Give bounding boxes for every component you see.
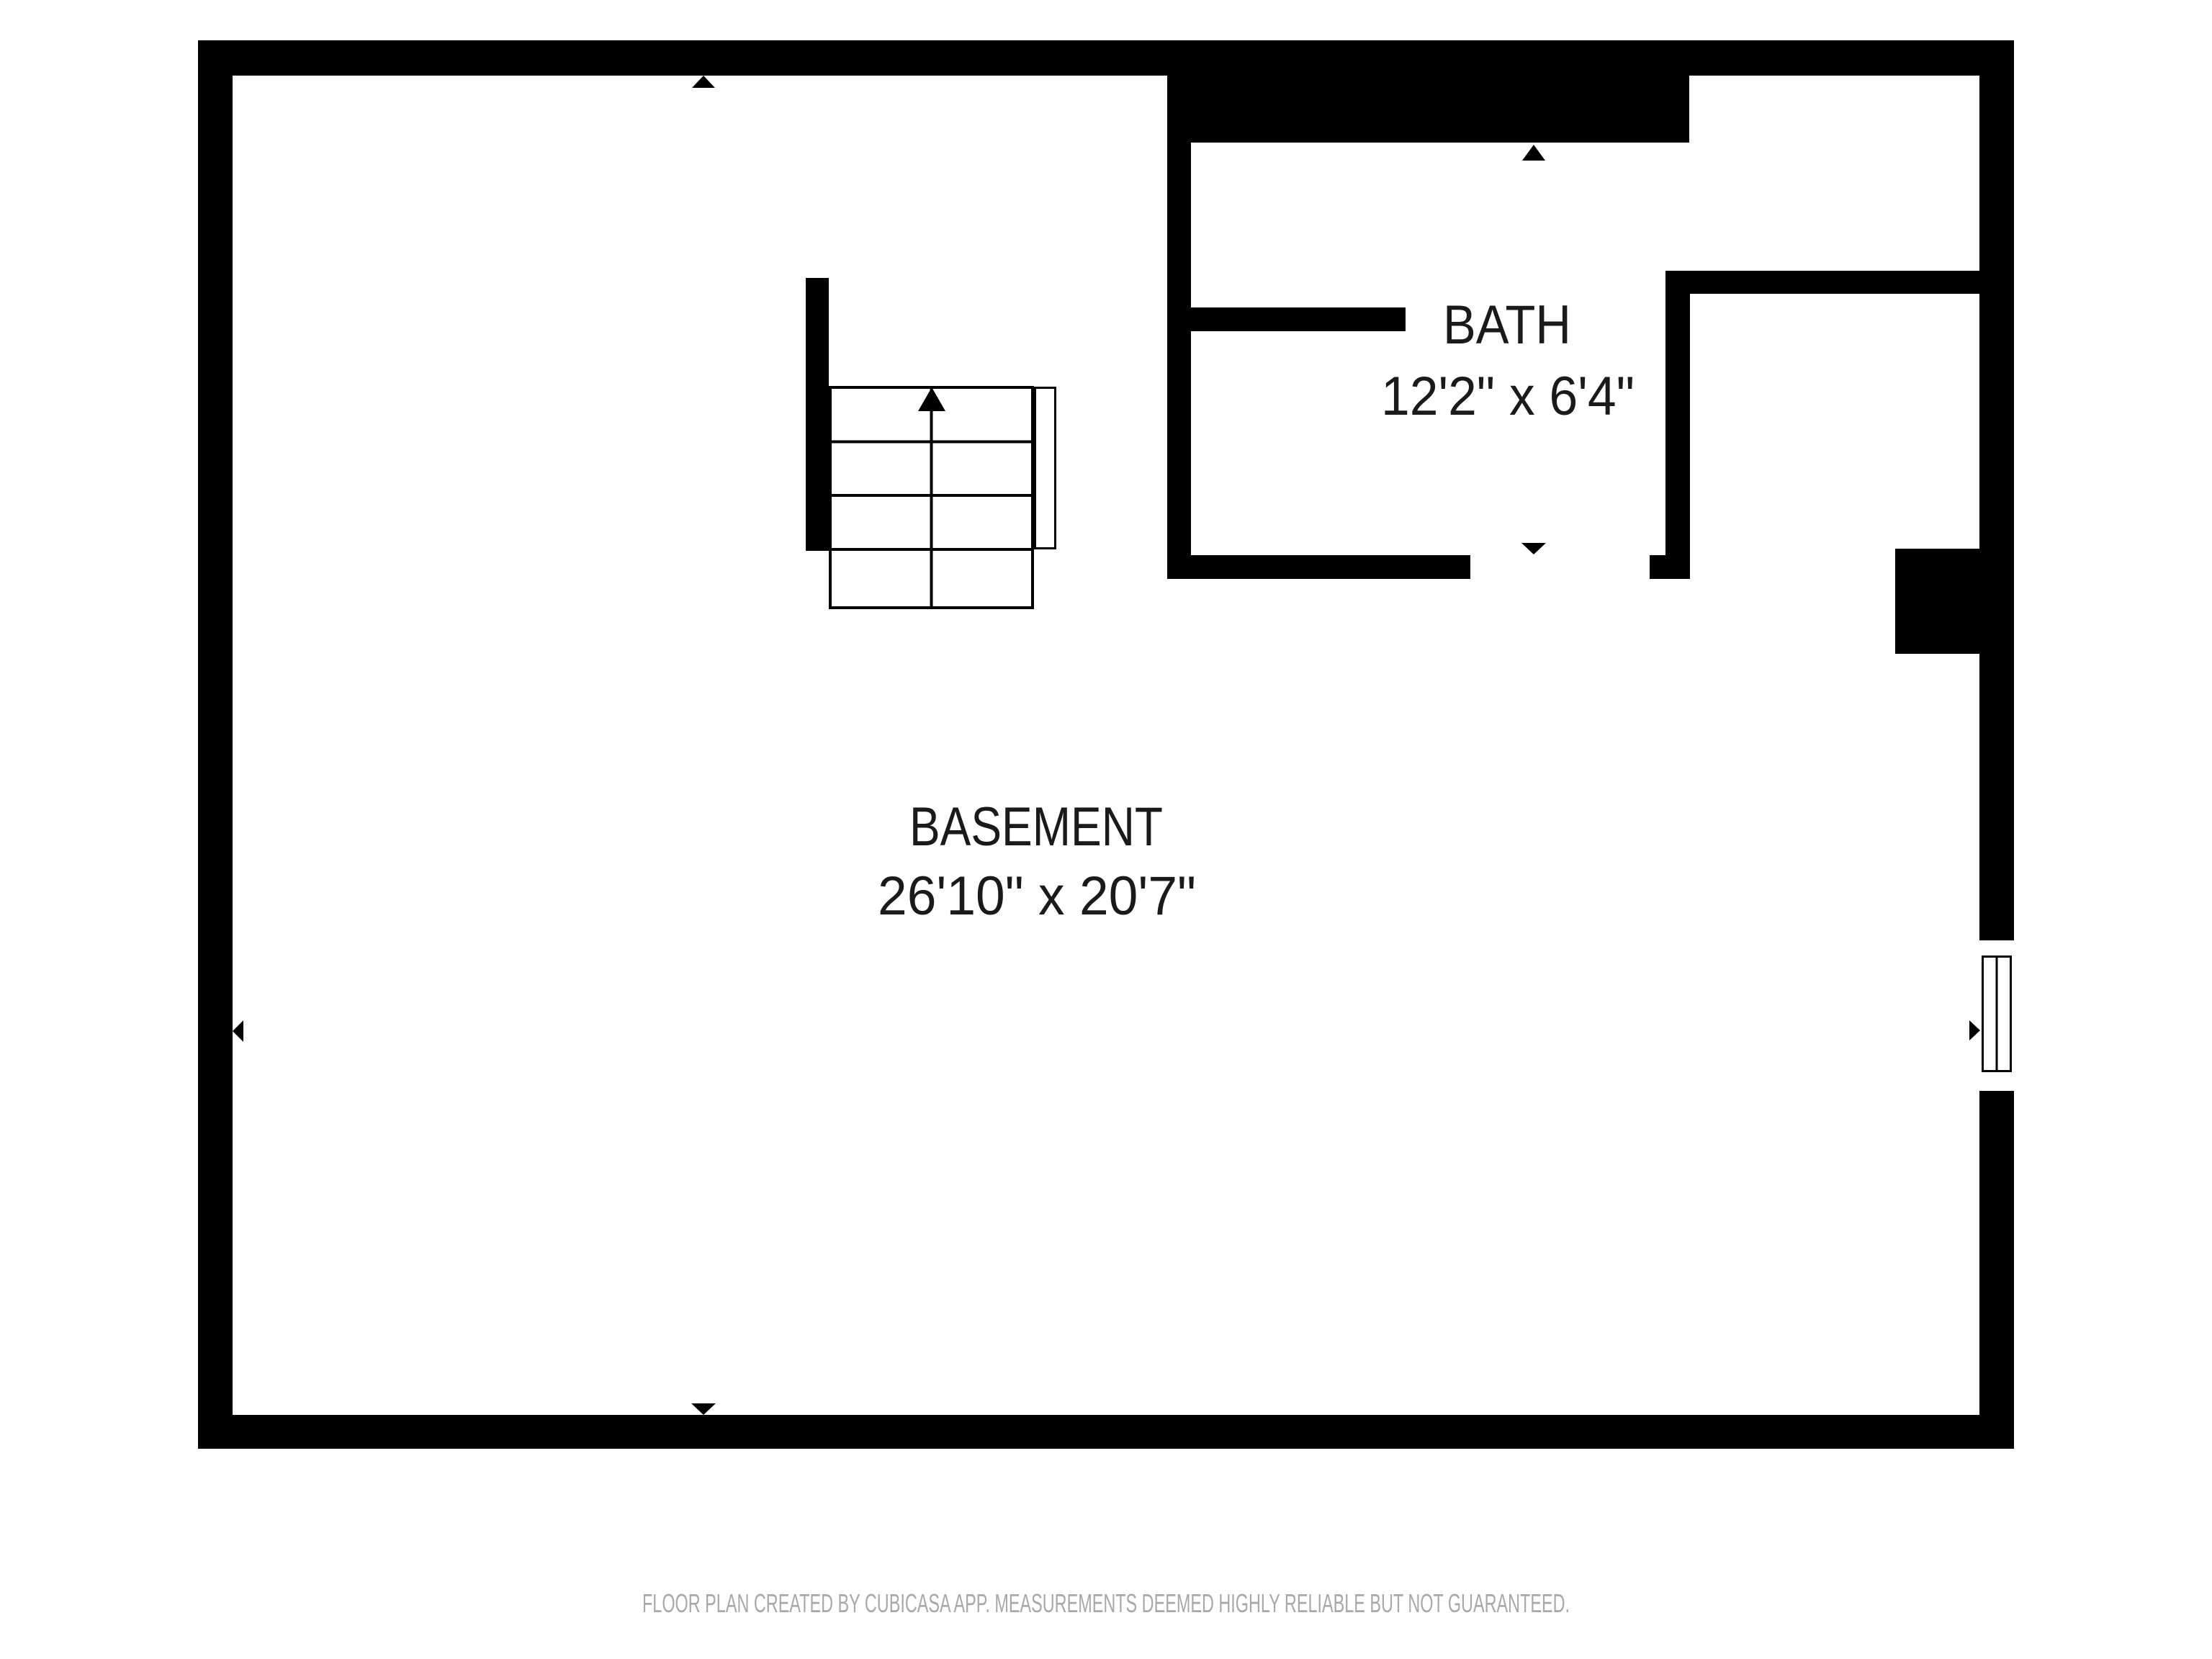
svg-text:BATH: BATH [1443, 295, 1571, 356]
svg-text:26'10" x 20'7": 26'10" x 20'7" [878, 866, 1196, 927]
svg-text:FLOOR PLAN CREATED BY CUBICASA: FLOOR PLAN CREATED BY CUBICASA APP. MEAS… [642, 1588, 1570, 1618]
svg-text:12'2" x 6'4": 12'2" x 6'4" [1381, 366, 1635, 427]
svg-text:BASEMENT: BASEMENT [909, 796, 1163, 858]
